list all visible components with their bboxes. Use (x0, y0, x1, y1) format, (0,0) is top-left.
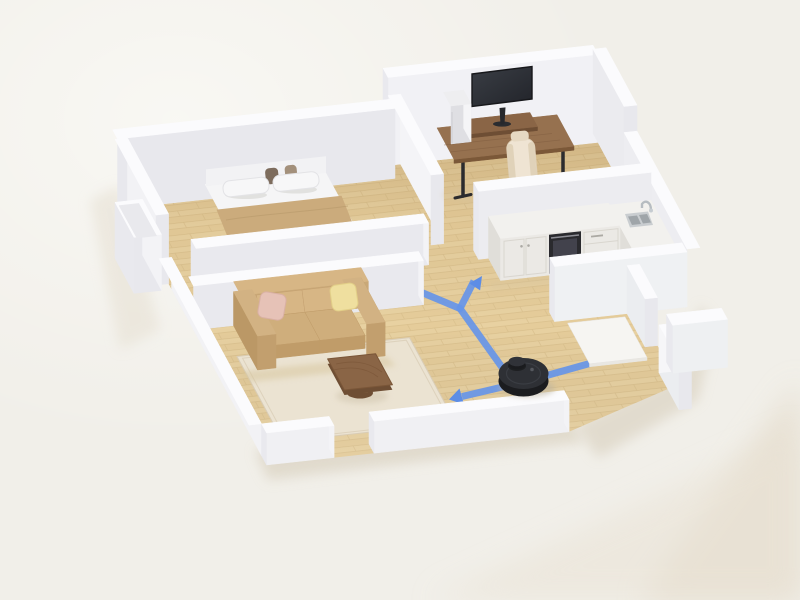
stainless-sink (625, 212, 653, 228)
yellow-cushion (329, 282, 358, 311)
isometric-floorplan-svg (0, 0, 800, 600)
south-wall-left (262, 416, 335, 465)
apartment-3d-render (0, 0, 800, 600)
floorplan-render-stage (0, 0, 800, 600)
pink-cushion (257, 291, 287, 321)
entry-outer-wall (667, 308, 728, 373)
